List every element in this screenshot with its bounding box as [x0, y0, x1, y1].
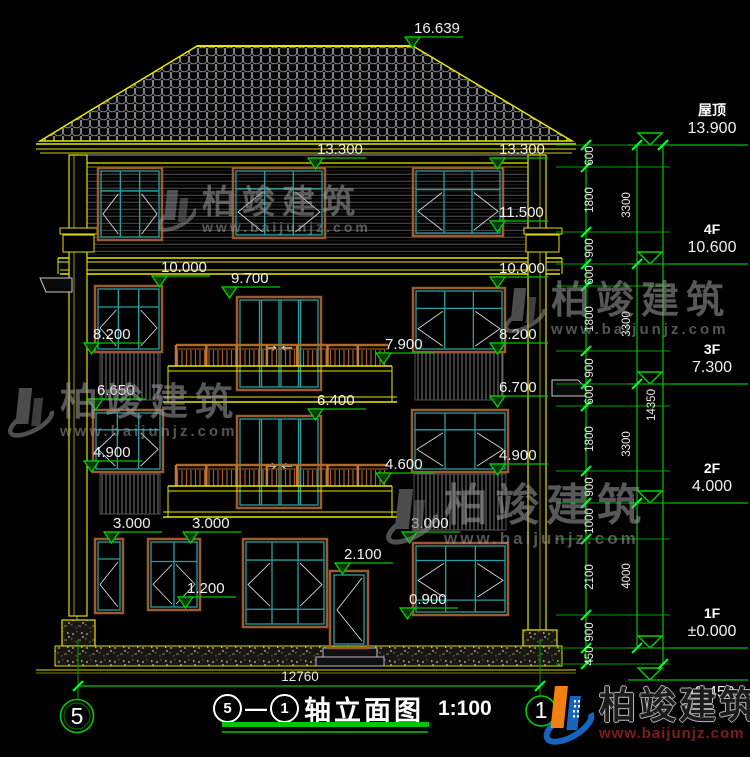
dim-segment: 1800 [584, 306, 596, 332]
dim-segment: 1800 [584, 187, 596, 213]
axis-number: 5 [71, 703, 84, 729]
balconies [163, 345, 397, 517]
elevation-value: 1.200 [187, 580, 225, 597]
hip-roof [40, 46, 572, 141]
title-axis-from: 5 [213, 694, 242, 723]
floor-level-symbol: 屋顶13.900 [628, 102, 748, 145]
dim-total: 3300 [621, 311, 633, 337]
floor-level-symbol: 2F4.000 [628, 460, 748, 503]
elevation-value: 13.300 [499, 141, 545, 158]
brand-name: 柏竣建筑 [599, 687, 750, 724]
elevation-value: 11.500 [499, 204, 544, 221]
floor-elevation: 4.000 [692, 478, 732, 495]
dim-segment: 900 [584, 358, 596, 377]
title-underline [222, 722, 429, 727]
elevation-value: 7.900 [385, 336, 423, 353]
elevation-value: 13.300 [317, 141, 363, 158]
elevation-value: 6.400 [317, 392, 355, 409]
title-scale: 1:100 [438, 697, 492, 721]
right-pilaster [523, 155, 562, 646]
cornice-band [58, 258, 562, 274]
dimension-chain: 6001800900600180090060018009001000210090… [556, 140, 670, 669]
window [412, 410, 508, 472]
elevation-value: 3.000 [411, 515, 449, 532]
elevation-value: 3.000 [113, 515, 151, 532]
dim-segment: 1800 [584, 426, 596, 452]
elevation-mark: 8.200 [84, 326, 142, 354]
dim-segment: 2100 [584, 564, 596, 590]
elevation-value: 8.200 [499, 326, 537, 343]
floor-level-symbol: 4F10.600 [628, 221, 748, 264]
elevation-value: 8.200 [93, 326, 131, 343]
elevation-mark: 4.900 [84, 444, 142, 472]
dim-segment: 900 [584, 238, 596, 257]
elevation-value: 10.000 [161, 259, 207, 276]
title-underline-thin [222, 731, 428, 733]
elevation-value: 6.650 [97, 382, 135, 399]
dim-total: 4000 [621, 563, 633, 589]
dim-segment: 600 [584, 265, 596, 284]
cad-canvas: 12760 5 1 16.63913.30013.30011.50010.000… [0, 0, 750, 757]
entry-steps [316, 657, 384, 666]
entry-steps [323, 648, 377, 657]
elevation-value: 10.000 [499, 260, 545, 277]
floor-name: 1F [704, 605, 721, 621]
floor-elevation: 10.600 [688, 239, 737, 256]
floor-name: 3F [704, 341, 721, 357]
entry-door [330, 571, 368, 648]
dim-total: 3300 [621, 192, 633, 218]
elevation-mark: 13.300 [308, 141, 366, 169]
left-ledge [40, 278, 72, 292]
window [243, 539, 327, 627]
dim-total: 3300 [621, 431, 633, 457]
floor-name: 2F [704, 460, 721, 476]
dim-overall: 14350 [646, 389, 658, 421]
dim-segment: 900 [584, 477, 596, 496]
elevation-value: 9.700 [231, 270, 269, 287]
elevation-mark: 10.000 [152, 259, 210, 287]
elevation-mark: 1.200 [178, 580, 236, 608]
sliding-door [237, 416, 321, 508]
elevation-mark: 16.639 [405, 20, 463, 48]
floor-elevation: ±0.000 [688, 623, 737, 640]
elevation-value: 4.900 [93, 444, 131, 461]
elevation-value: 3.000 [192, 515, 230, 532]
elevation-value: 0.900 [409, 591, 447, 608]
floor-elevation: 13.900 [688, 120, 737, 137]
dim-segment: 1000 [584, 508, 596, 534]
dim-segment: 600 [584, 385, 596, 404]
window [95, 539, 123, 613]
elevation-value: 6.700 [499, 379, 537, 396]
brand-logo-icon [543, 676, 595, 752]
louver-panel [415, 353, 503, 400]
balcony [163, 345, 397, 402]
floor-name: 屋顶 [698, 102, 726, 118]
elevation-value: 2.100 [344, 546, 382, 563]
floor-level-symbol: 1F±0.000 [628, 605, 748, 648]
top-floor-siding [78, 168, 536, 256]
brand-logo: 柏竣建筑 www.baijunjz.com [543, 676, 750, 752]
dim-segment: 450 [584, 646, 596, 665]
elevation-mark: 6.400 [308, 392, 366, 420]
elevation-drawing: 12760 5 1 16.63913.30013.30011.50010.000… [0, 0, 750, 757]
title-axis-to: 1 [270, 694, 299, 723]
louver-panel [100, 474, 160, 514]
brand-url: www.baijunjz.com [599, 726, 750, 741]
floor-name: 4F [704, 221, 721, 237]
floor-elevation: 7.300 [692, 359, 732, 376]
dim-segment: 900 [584, 622, 596, 641]
sliding-door [237, 297, 321, 390]
ground-hatch [55, 646, 562, 666]
elevation-value: 4.600 [385, 456, 423, 473]
overall-width-dim: 12760 [281, 669, 319, 684]
elevation-mark: 3.000 [183, 515, 241, 543]
axis-bubble-left: 5 [61, 700, 94, 733]
elevation-value: 16.639 [414, 20, 460, 37]
window [148, 539, 200, 610]
title-dash: — [245, 696, 267, 722]
elevation-value: 4.900 [499, 447, 537, 464]
floor-level-symbol: 3F7.300 [628, 341, 748, 384]
dim-segment: 600 [584, 146, 596, 165]
window [93, 410, 163, 472]
